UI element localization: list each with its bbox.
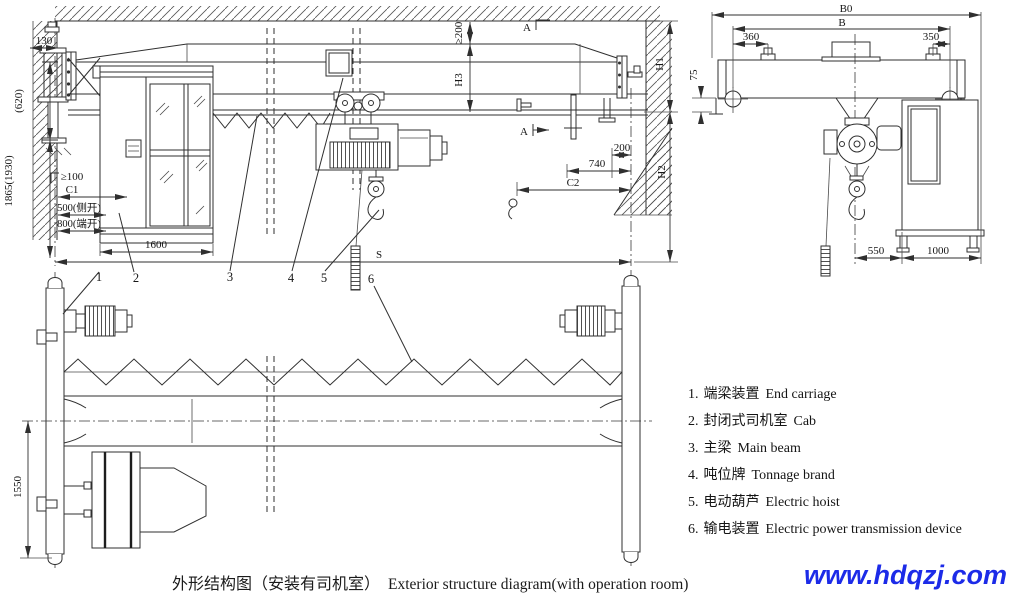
legend-en: Electric hoist: [766, 495, 840, 510]
trolley-wheel: [336, 94, 354, 112]
dim-h3: H3: [453, 73, 465, 87]
legend-zh: 主梁: [704, 441, 732, 456]
plan-view: 1550: [12, 270, 652, 568]
dim-ge100: ≥100: [61, 171, 84, 183]
legend-item-main-beam: 3.主梁Main beam: [688, 435, 1010, 462]
legend-item-electric-hoist: 5.电动葫芦Electric hoist: [688, 489, 1010, 516]
ceiling-hatch: [55, 6, 660, 21]
hoist-motor: [398, 130, 430, 166]
pendant-controller: [351, 246, 360, 290]
festoon-cable-plan: [64, 359, 622, 385]
legend-number: 4.: [688, 468, 699, 483]
tonnage-plate: [326, 50, 352, 76]
legend-item-end-carriage: 1.端梁装置End carriage: [688, 381, 1010, 408]
callout-3: 3: [227, 270, 233, 284]
end-view: B0 B 360 350 75 550 1000: [688, 3, 984, 276]
crane-wheel: [48, 554, 62, 565]
legend-item-tonnage-brand: 4.吨位牌Tonnage brand: [688, 462, 1010, 489]
dim-360: 360: [743, 31, 760, 43]
dim-500: 500(侧开): [57, 201, 101, 214]
diagram-caption: 外形结构图（安装有司机室）Exterior structure diagram(…: [172, 570, 792, 594]
caption-english: Exterior structure diagram(with operatio…: [388, 576, 688, 593]
travel-motor: [577, 306, 605, 336]
dim-s: S: [376, 249, 382, 261]
trolley-wheel: [362, 94, 380, 112]
dim-130: 130: [36, 35, 53, 47]
legend-number: 1.: [688, 387, 699, 402]
callout-6: 6: [368, 272, 374, 286]
caption-chinese: 外形结构图（安装有司机室）: [172, 576, 380, 593]
cab-plan: [64, 452, 206, 548]
callout-4: 4: [288, 271, 295, 285]
callout-2: 2: [133, 271, 139, 285]
pendant-controller: [821, 246, 830, 276]
legend-en: Main beam: [738, 441, 801, 456]
dim-1000: 1000: [927, 245, 950, 257]
legend-en: Electric power transmission device: [766, 522, 962, 537]
dim-75: 75: [688, 69, 700, 81]
cab-end-view: [896, 100, 984, 252]
panel-box: [832, 42, 870, 58]
dim-350: 350: [923, 31, 940, 43]
electric-hoist-end: [821, 98, 907, 276]
legend-number: 5.: [688, 495, 699, 510]
legend-en: End carriage: [766, 387, 837, 402]
front-view: 130 (620) 1865(1930) ≥100 C1 500(侧开) 800…: [3, 6, 678, 290]
section-a-label-top: A: [523, 22, 531, 34]
dim-c1: C1: [66, 184, 79, 196]
legend-zh: 封闭式司机室: [704, 414, 788, 429]
dim-1865: 1865(1930): [3, 155, 15, 207]
dim-1600: 1600: [145, 239, 168, 251]
hook-icon: [368, 197, 383, 219]
callout-1: 1: [96, 270, 102, 284]
legend-item-cab: 2.封闭式司机室Cab: [688, 408, 1010, 435]
website-link[interactable]: www.hdqzj.com: [804, 560, 1007, 591]
crane-wheel: [624, 276, 638, 287]
dim-b: B: [838, 17, 845, 29]
legend-en: Cab: [794, 414, 817, 429]
travel-motor: [85, 306, 115, 336]
legend-number: 2.: [688, 414, 699, 429]
pendant-cable: [826, 158, 830, 246]
dim-620: (620): [13, 89, 25, 113]
crane-wheel: [48, 278, 62, 289]
crane-exterior-structure-diagram: 130 (620) 1865(1930) ≥100 C1 500(侧开) 800…: [0, 0, 1010, 600]
legend-item-power-transmission: 6.输电装置Electric power transmission device: [688, 516, 1010, 543]
dim-ge200: ≥200: [453, 21, 465, 44]
dim-h2: H2: [656, 165, 668, 178]
callout-5: 5: [321, 271, 327, 285]
dim-550: 550: [868, 245, 885, 257]
legend-zh: 吨位牌: [704, 468, 746, 483]
right-end-carriage: [560, 270, 640, 566]
legend-en: Tonnage brand: [752, 468, 835, 483]
dim-800: 800(端开): [57, 217, 101, 230]
legend-zh: 输电装置: [704, 522, 760, 537]
dim-c2: C2: [567, 177, 580, 189]
parts-legend: 1.端梁装置End carriage 2.封闭式司机室Cab 3.主梁Main …: [688, 381, 1010, 543]
legend-zh: 电动葫芦: [704, 495, 760, 510]
dim-740: 740: [589, 158, 606, 170]
legend-number: 6.: [688, 522, 699, 537]
dim-h1: H1: [654, 57, 666, 70]
legend-number: 3.: [688, 441, 699, 456]
legend-zh: 端梁装置: [704, 387, 760, 402]
dim-200: 200: [614, 142, 631, 154]
hook-icon: [849, 197, 864, 219]
cab: [93, 66, 213, 243]
crane-wheel: [624, 552, 638, 563]
hook-pulley: [849, 181, 865, 197]
dim-1550: 1550: [12, 476, 24, 499]
hoist-motor: [877, 126, 901, 150]
dim-b0: B0: [840, 3, 853, 15]
right-wall-hatch: [614, 21, 672, 215]
hook-pulley: [368, 181, 384, 197]
section-a-label-bottom: A: [520, 126, 528, 138]
